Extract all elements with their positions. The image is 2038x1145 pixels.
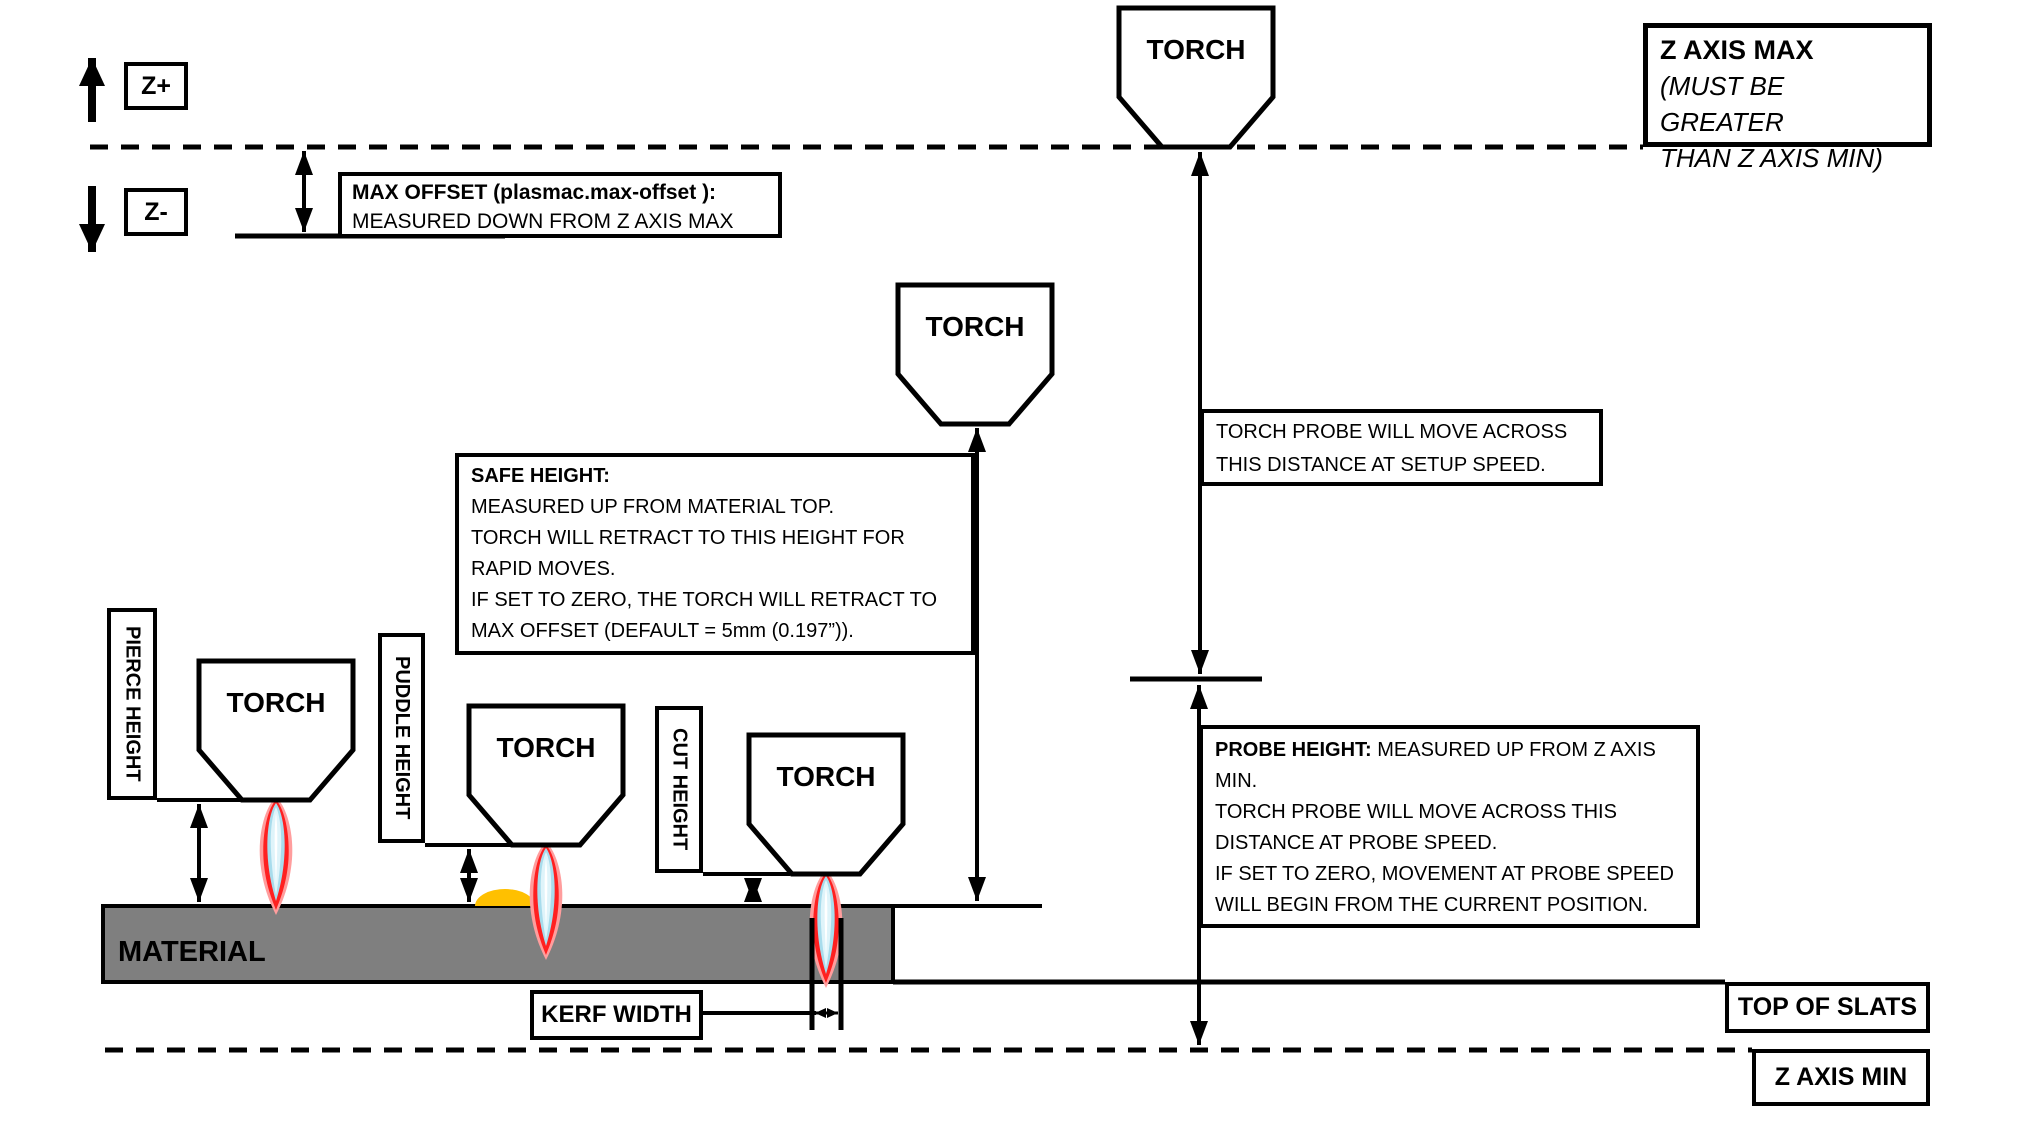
kerf-width-text: KERF WIDTH [541, 1001, 692, 1029]
z-minus-label: Z- [124, 188, 188, 236]
safe-height-title: SAFE HEIGHT: [471, 461, 959, 492]
z-axis-min-label: Z AXIS MIN [1752, 1049, 1930, 1106]
cut-height-label: CUT HEIGHT [655, 706, 703, 873]
pierce-flame [260, 797, 293, 915]
torch-label: TORCH [898, 305, 1052, 349]
max-offset-title: MAX OFFSET (plasmac.max-offset ): [352, 178, 768, 207]
setup-speed-text: TORCH PROBE WILL MOVE ACROSS THIS DISTAN… [1216, 421, 1567, 476]
z-plus-label: Z+ [124, 62, 188, 110]
probe-height-body: MEASURED UP FROM Z AXIS MIN. TORCH PROBE… [1215, 739, 1674, 916]
puddle-height-label: PUDDLE HEIGHT [378, 633, 425, 843]
probe-height-title: PROBE HEIGHT: [1215, 739, 1372, 761]
torch-label: TORCH [199, 681, 353, 725]
top-of-slats-text: TOP OF SLATS [1738, 993, 1917, 1022]
material-label: MATERIAL [118, 936, 266, 969]
torch-label: TORCH [469, 726, 623, 770]
kerf-width-label: KERF WIDTH [530, 990, 703, 1040]
safe-height-note: SAFE HEIGHT:MEASURED UP FROM MATERIAL TO… [455, 453, 975, 655]
torch-label: TORCH [1119, 28, 1273, 72]
plasmac-heights-diagram: Z+ Z- MAX OFFSET (plasmac.max-offset ):M… [0, 0, 2038, 1145]
pierce-height-text: PIERCE HEIGHT [121, 626, 144, 782]
puddle-height-text: PUDDLE HEIGHT [390, 656, 413, 819]
z-axis-max-label: Z AXIS MAX(MUST BE GREATER THAN Z AXIS M… [1643, 23, 1932, 147]
max-offset-body: MEASURED DOWN FROM Z AXIS MAX [352, 210, 734, 233]
molten-puddle [475, 889, 535, 906]
material-text: MATERIAL [118, 936, 266, 968]
z-axis-min-text: Z AXIS MIN [1775, 1063, 1907, 1092]
max-offset-label: MAX OFFSET (plasmac.max-offset ):MEASURE… [338, 172, 782, 238]
probe-height-note: PROBE HEIGHT: MEASURED UP FROM Z AXIS MI… [1199, 725, 1700, 928]
cut-height-text: CUT HEIGHT [668, 728, 691, 850]
z-axis-max-note: (MUST BE GREATER THAN Z AXIS MIN) [1660, 71, 1883, 173]
z-axis-max-title: Z AXIS MAX [1660, 32, 1915, 68]
z-minus-text: Z- [144, 198, 168, 227]
setup-speed-note: TORCH PROBE WILL MOVE ACROSS THIS DISTAN… [1200, 409, 1603, 486]
z-plus-text: Z+ [141, 72, 171, 101]
torch-label: TORCH [749, 755, 903, 799]
top-of-slats-label: TOP OF SLATS [1725, 982, 1930, 1033]
pierce-height-label: PIERCE HEIGHT [107, 608, 157, 800]
safe-height-body: MEASURED UP FROM MATERIAL TOP. TORCH WIL… [471, 496, 937, 642]
